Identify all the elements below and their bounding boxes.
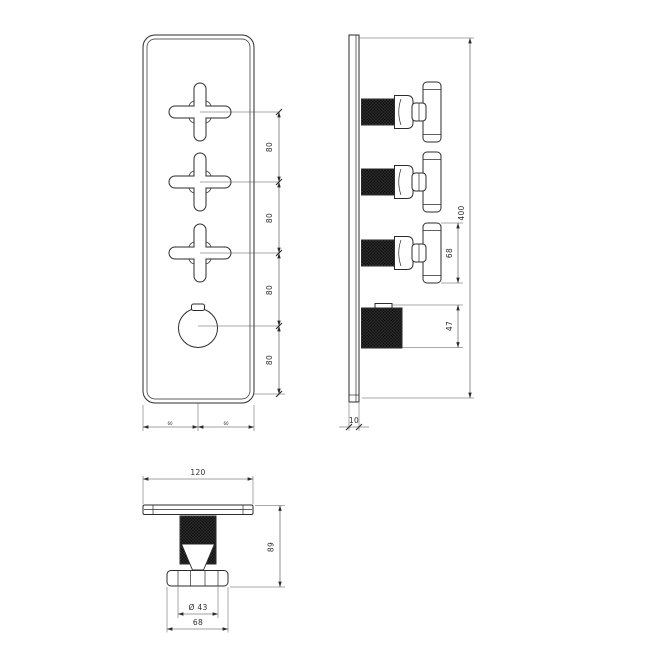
dimension-overall-depth: 89 — [230, 506, 285, 588]
dim-label-120: 120 — [190, 468, 205, 477]
bottom-view: 120 89 Ø 43 68 — [143, 468, 285, 633]
dimension-plate-thickness: 10 — [339, 403, 369, 431]
cross-handle-side-2 — [362, 152, 442, 212]
side-view: 68 47 400 10 — [339, 35, 474, 431]
dim-label-68-span: 68 — [193, 618, 203, 627]
knurled-stem — [362, 169, 395, 195]
handle-cup — [395, 96, 414, 129]
cross-handle-front-1 — [169, 83, 279, 141]
knurled-stem — [362, 99, 395, 125]
dim-label-47: 47 — [445, 321, 454, 331]
handle-cup — [395, 166, 414, 199]
cross-handle-front-2 — [169, 153, 279, 211]
front-view: 80 80 80 80 60 60 — [143, 35, 285, 431]
dim-label-400: 400 — [457, 205, 466, 220]
round-knob-side — [362, 304, 403, 349]
technical-drawing-canvas: 80 80 80 80 60 60 — [0, 0, 648, 648]
dim-label-80-2: 80 — [265, 213, 274, 223]
knurled-knob-body — [362, 308, 403, 348]
dim-label-half-left: 60 — [167, 421, 173, 426]
knurled-stem — [362, 240, 395, 266]
dim-label-80-3: 80 — [265, 285, 274, 295]
dim-label-68: 68 — [445, 248, 454, 258]
dimension-knob-height: 47 — [392, 305, 463, 348]
cross-handle-side-3 — [362, 223, 442, 283]
dimension-knurl-diameter: Ø 43 — [178, 587, 218, 618]
dim-label-80-4: 80 — [265, 355, 274, 365]
dimension-plate-width: 120 — [143, 468, 253, 504]
cross-arm-bottom — [167, 571, 228, 587]
side-plate-profile — [349, 35, 359, 402]
valve-trim-drawing: 80 80 80 80 60 60 — [0, 0, 648, 648]
dim-label-89: 89 — [267, 542, 276, 552]
dim-label-80-1: 80 — [265, 142, 274, 152]
dim-label-half-right: 60 — [223, 421, 229, 426]
knob-index-tab — [192, 304, 205, 311]
round-knob-front — [179, 304, 280, 348]
cross-handle-front-3 — [169, 224, 279, 282]
handle-cup — [395, 237, 414, 270]
dim-label-diameter-43: Ø 43 — [188, 603, 207, 612]
dim-label-10: 10 — [349, 416, 359, 425]
dimension-bottom-split: 60 60 — [143, 403, 254, 431]
handle-bottom-profile — [167, 516, 228, 586]
knob-outline — [179, 309, 218, 348]
dimension-handle-height: 68 — [441, 223, 463, 283]
cross-handle-side-1 — [362, 82, 442, 142]
